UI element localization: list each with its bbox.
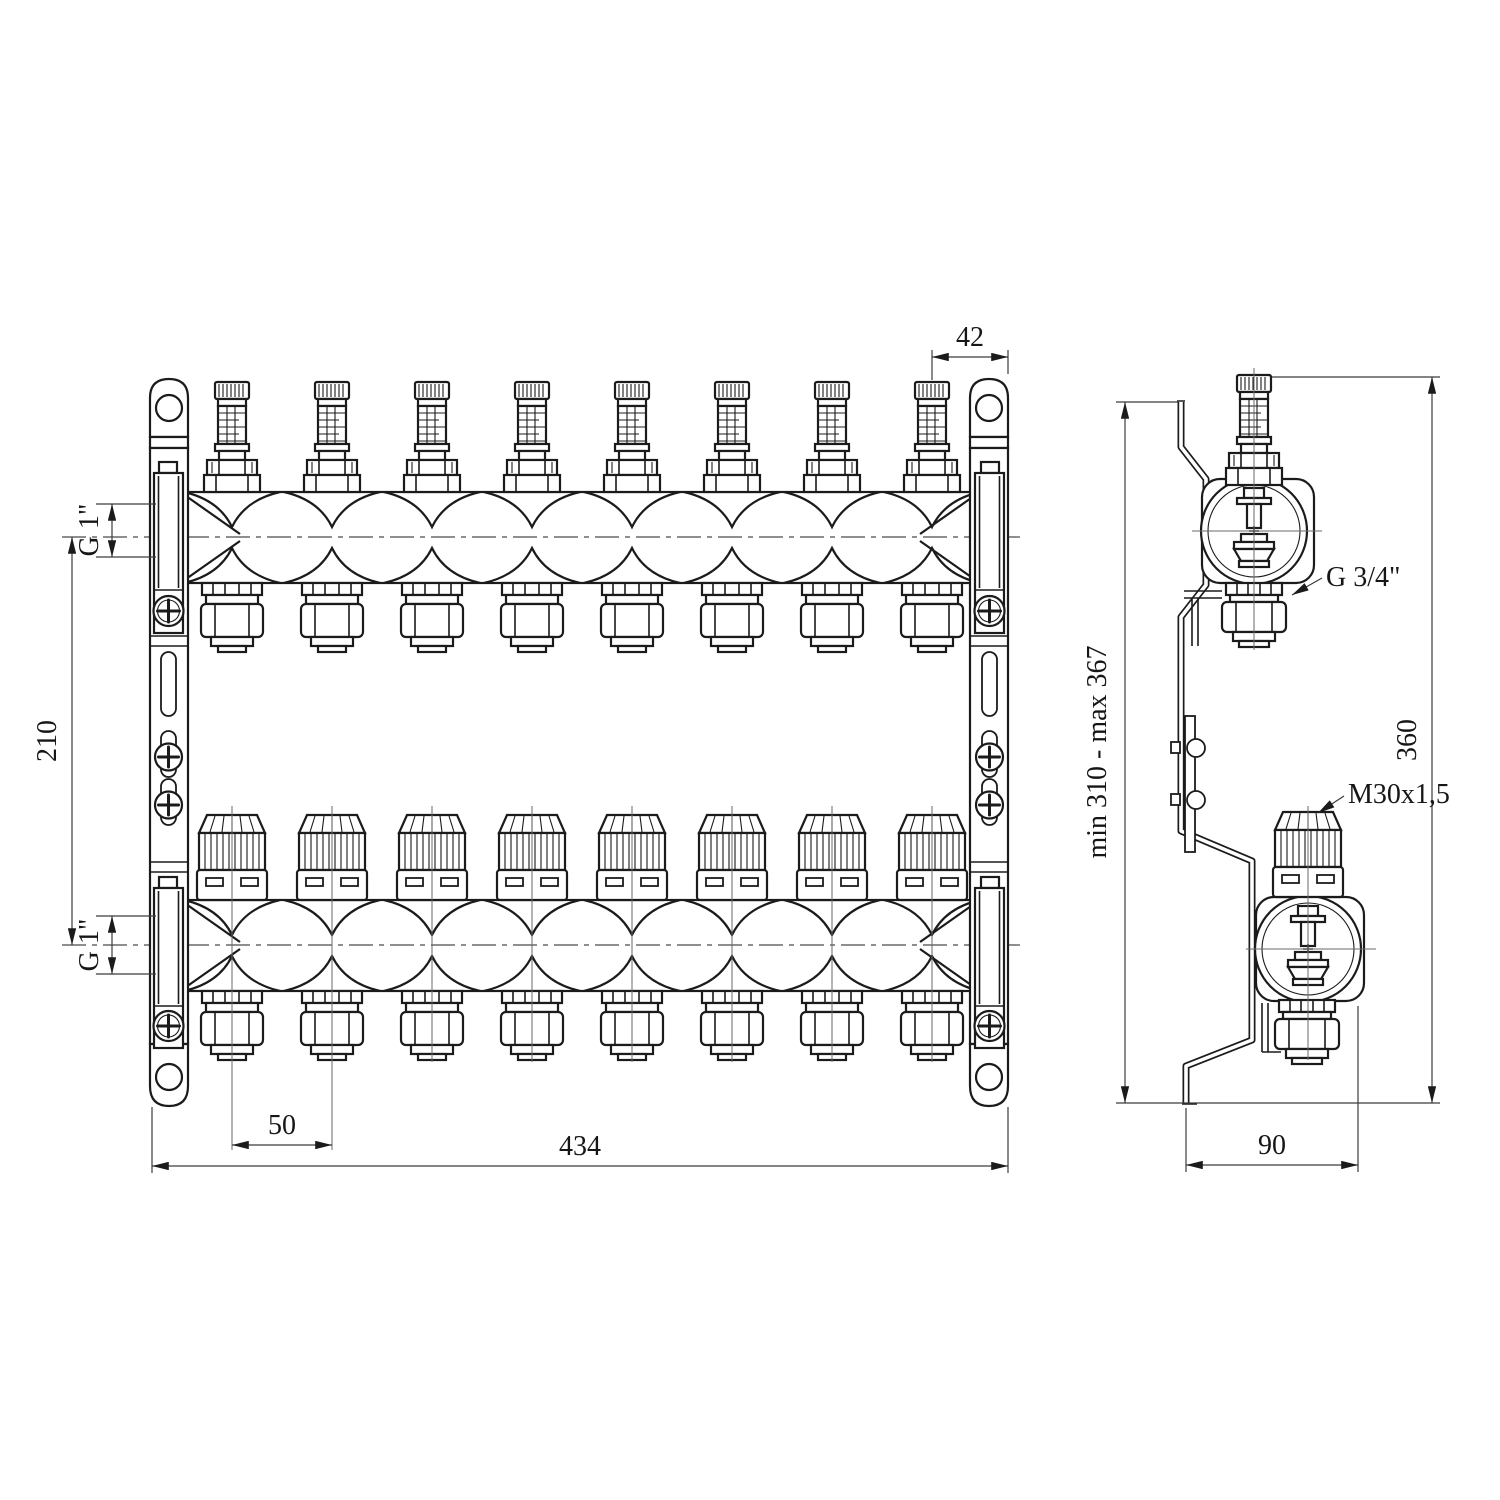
flow-meters-row [204,382,960,492]
rail-tab [1171,794,1180,805]
flow-meter [804,382,860,492]
rail-tab [1171,742,1180,753]
left-mounting-bracket [150,379,188,1106]
flow-meter [704,382,760,492]
front-view-manifold: 42 G 1" 210 G 1" 50 434 [32,322,1020,1173]
supply-outlet-fitting [301,583,363,652]
label-g34-text: G 3/4" [1326,562,1400,593]
rail-stud [1187,739,1205,757]
dimension-g1-supply: G 1" [74,504,156,557]
mounting-rail-plate [1185,716,1195,852]
supply-outlet-fitting [601,583,663,652]
dimension-42-text: 42 [956,322,984,353]
flow-meter [604,382,660,492]
flow-meter [204,382,260,492]
flow-meter [904,382,960,492]
flow-meter [504,382,560,492]
supply-outlet-fitting [201,583,263,652]
dimension-90-text: 90 [1258,1130,1286,1161]
return-outlets-row [201,991,963,1060]
dimension-210: 210 [32,537,72,945]
top-clamp-strap [1184,591,1222,646]
label-m30-text: M30x1,5 [1348,779,1450,810]
drawing-canvas: 42 G 1" 210 G 1" 50 434 [0,0,1500,1500]
dimension-42: 42 [932,322,1008,380]
dimension-434-text: 434 [559,1131,601,1162]
supply-outlet-fitting [401,583,463,652]
side-view-manifold: min 310 - max 367 360 90 G 3/4" M30x1,5 [1082,368,1450,1172]
dimension-210-text: 210 [32,720,63,762]
dimension-360-text: 360 [1392,719,1423,761]
return-outlet-side [1275,1000,1339,1064]
dimension-50-text: 50 [268,1110,296,1141]
supply-outlets-row [201,583,963,652]
rail-stud [1187,791,1205,809]
dimension-min-max-text: min 310 - max 367 [1082,645,1113,858]
supply-outlet-fitting [701,583,763,652]
supply-outlet-fitting [901,583,963,652]
dimension-g1-supply-text: G 1" [74,504,105,557]
thermostatic-valves-row [197,815,967,900]
manifold-technical-drawing: 42 G 1" 210 G 1" 50 434 [0,0,1500,1500]
dimension-50: 50 [232,1110,332,1145]
supply-outlet-fitting [801,583,863,652]
flow-meter [304,382,360,492]
flow-meter [404,382,460,492]
right-mounting-bracket [970,379,1008,1106]
dimension-g1-return-text: G 1" [74,919,105,972]
supply-outlet-fitting [501,583,563,652]
label-m30: M30x1,5 [1318,779,1450,813]
